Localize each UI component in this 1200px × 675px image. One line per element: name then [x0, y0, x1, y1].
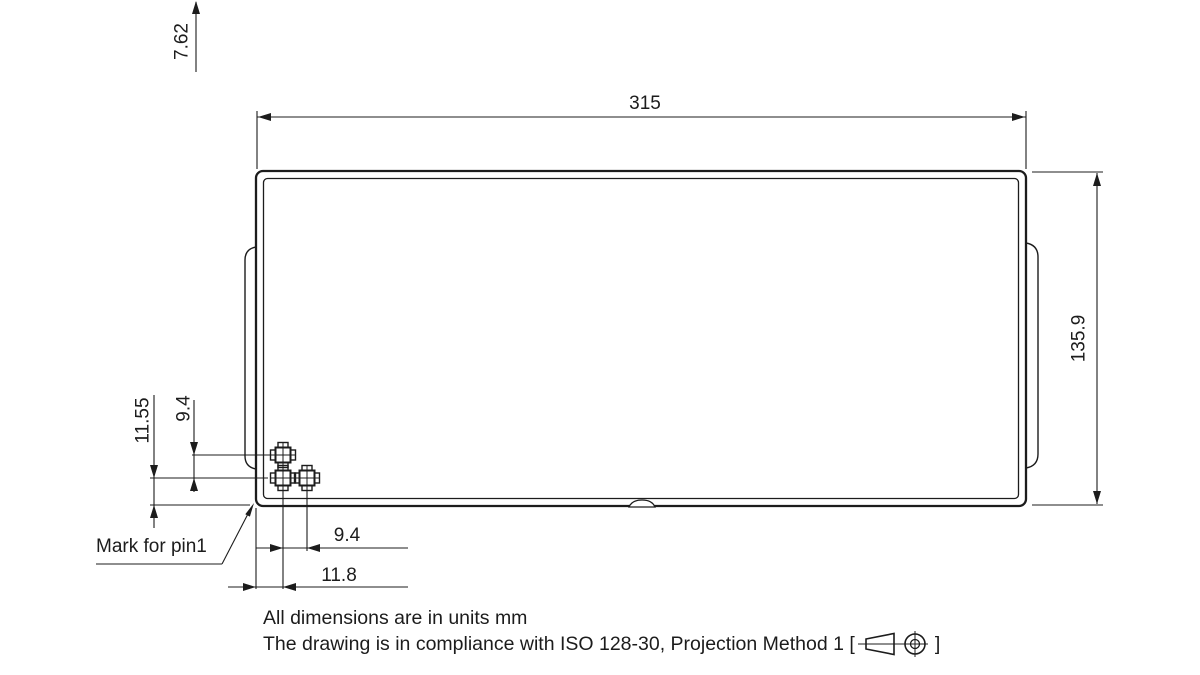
arrow-down-icon [1093, 491, 1101, 504]
dim-135-9-value: 135.9 [1069, 299, 1090, 379]
arrow-right-icon [270, 544, 283, 552]
arrow-down-icon [150, 465, 158, 478]
dim-11-8-value: 11.8 [309, 565, 369, 586]
pin1-mark-callout: Mark for pin1 [96, 536, 207, 557]
arrow-left-icon [283, 583, 296, 591]
module-body-outline [245, 171, 1038, 507]
arrow-right-icon [243, 583, 256, 591]
right-edge-tab [1026, 243, 1038, 468]
drawing-linework [0, 0, 1200, 675]
note-standard: The drawing is in compliance with ISO 12… [263, 631, 940, 657]
arrow-up-icon [150, 505, 158, 518]
dim-11-55-value: 11.55 [133, 381, 154, 461]
arrow-up-icon [190, 478, 198, 491]
note-units-text: All dimensions are in units mm [263, 605, 527, 631]
dim-315-linework [257, 111, 1026, 169]
note-standard-text: The drawing is in compliance with ISO 12… [263, 631, 855, 657]
mechanical-drawing-canvas: 7.62 315 135.9 11.55 9.4 9.4 11.8 Mark f… [0, 0, 1200, 675]
arrow-left-icon [258, 113, 271, 121]
dim-7-62-linework [192, 1, 200, 72]
dim-7-62-value: 7.62 [172, 7, 193, 77]
drawing-notes: All dimensions are in units mm The drawi… [263, 605, 940, 657]
arrow-right-icon [1012, 113, 1025, 121]
dim-135-9-linework [1032, 172, 1103, 505]
dim-315-value: 315 [605, 93, 685, 114]
arrow-up-icon [192, 1, 200, 14]
note-standard-bracket: ] [935, 631, 940, 657]
body-outer-edge [256, 171, 1026, 506]
left-edge-tab [245, 247, 256, 469]
dim-9-4-left-value: 9.4 [174, 379, 195, 439]
dim-9-4-bottom-value: 9.4 [317, 525, 377, 546]
note-units: All dimensions are in units mm [263, 605, 940, 631]
arrow-down-icon [190, 442, 198, 455]
arrow-up-icon [1093, 173, 1101, 186]
first-angle-projection-icon [856, 630, 934, 658]
